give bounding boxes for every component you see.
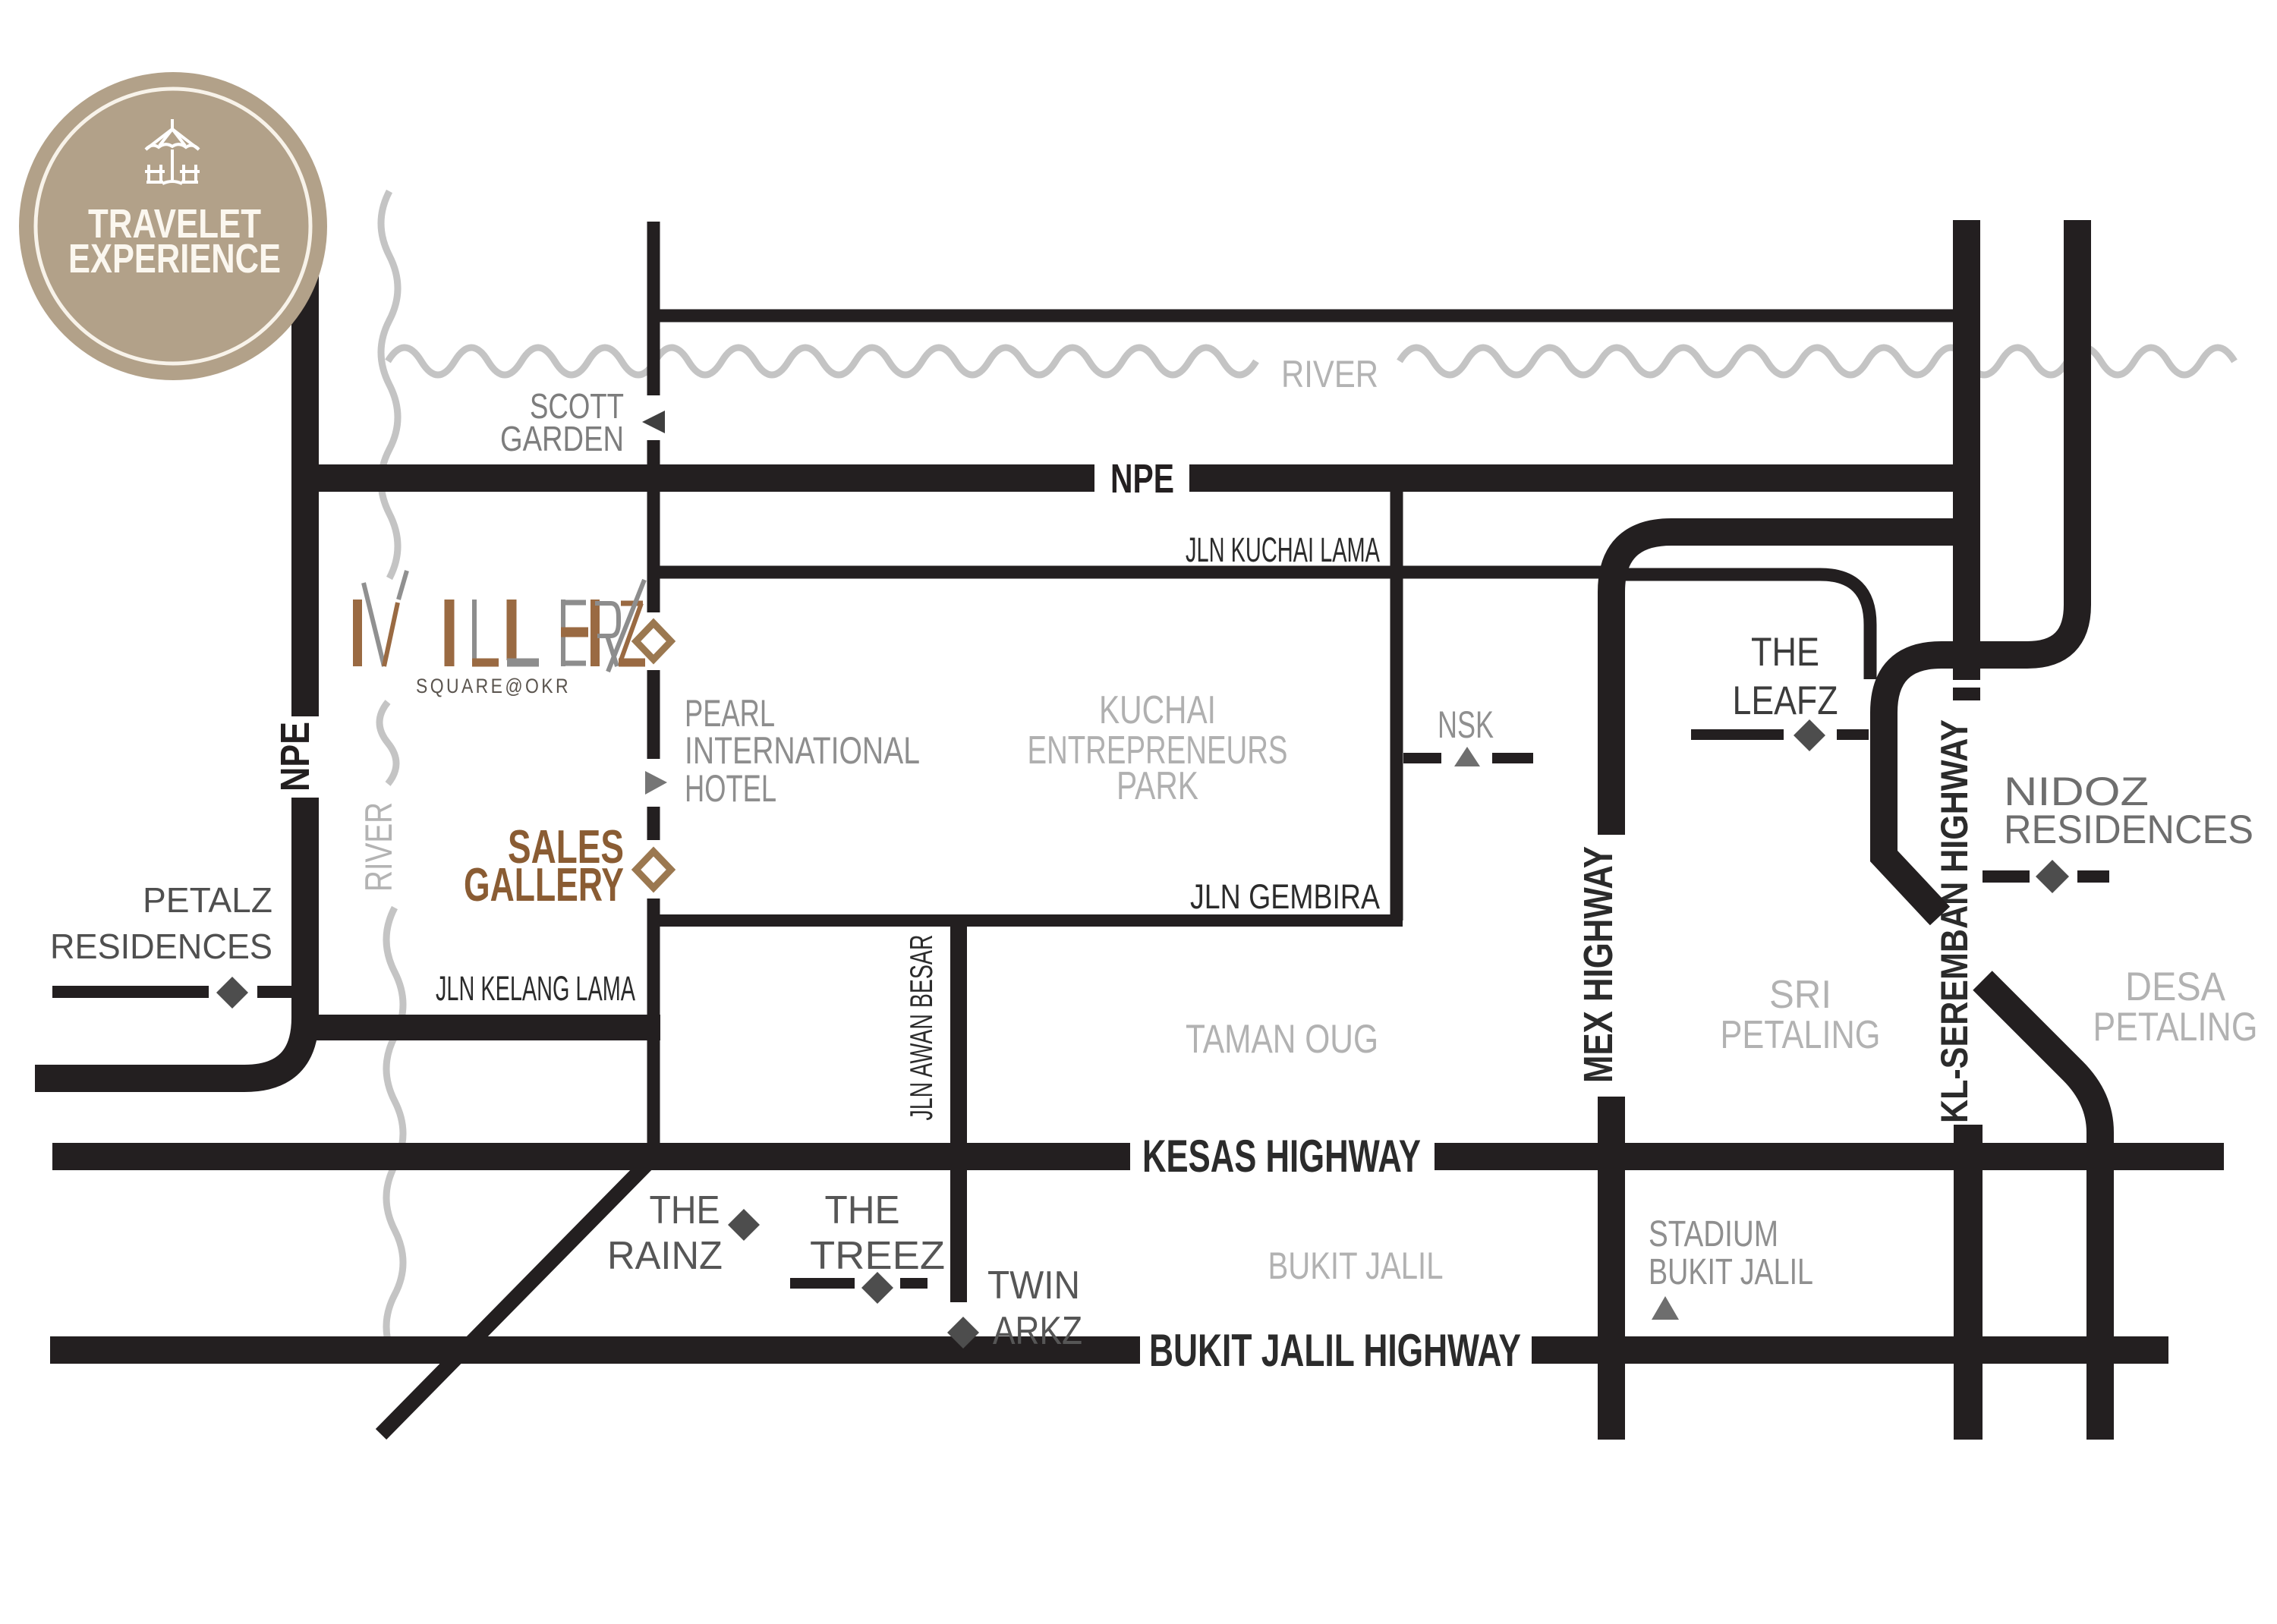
svg-text:JLN KUCHAI LAMA: JLN KUCHAI LAMA <box>1186 530 1380 569</box>
svg-text:BUKIT JALIL HIGHWAY: BUKIT JALIL HIGHWAY <box>1149 1325 1521 1376</box>
svg-text:INTERNATIONAL: INTERNATIONAL <box>685 729 920 772</box>
svg-text:NSK: NSK <box>1438 703 1494 746</box>
svg-text:THE: THE <box>825 1188 900 1232</box>
svg-text:RAINZ: RAINZ <box>607 1234 723 1278</box>
svg-text:NPE: NPE <box>1110 456 1174 502</box>
svg-text:THE: THE <box>1751 630 1819 675</box>
svg-text:RESIDENCES: RESIDENCES <box>50 927 272 966</box>
svg-text:PETALZ: PETALZ <box>143 880 272 920</box>
svg-text:RIVER: RIVER <box>357 802 400 892</box>
svg-text:SRI: SRI <box>1769 973 1831 1017</box>
svg-text:JLN AWAN BESAR: JLN AWAN BESAR <box>903 935 939 1121</box>
svg-text:RIVER: RIVER <box>1281 353 1378 395</box>
svg-text:LEAFZ: LEAFZ <box>1733 678 1838 723</box>
svg-text:EXPERIENCE: EXPERIENCE <box>68 236 281 282</box>
svg-text:PARK: PARK <box>1116 764 1198 808</box>
svg-text:STADIUM: STADIUM <box>1649 1214 1778 1254</box>
svg-text:GARDEN: GARDEN <box>500 419 624 458</box>
svg-text:SQUARE@OKR: SQUARE@OKR <box>416 675 571 697</box>
svg-text:JLN KELANG LAMA: JLN KELANG LAMA <box>436 969 635 1008</box>
svg-text:PETALING: PETALING <box>2093 1005 2258 1050</box>
svg-text:DESA: DESA <box>2125 965 2226 1009</box>
svg-text:BUKIT JALIL: BUKIT JALIL <box>1649 1252 1813 1292</box>
svg-text:PETALING: PETALING <box>1721 1013 1881 1057</box>
svg-text:ARKZ: ARKZ <box>993 1309 1082 1353</box>
svg-text:GALLERY: GALLERY <box>464 859 624 911</box>
svg-text:KESAS HIGHWAY: KESAS HIGHWAY <box>1142 1131 1421 1182</box>
svg-text:RESIDENCES: RESIDENCES <box>2004 807 2253 852</box>
svg-text:TWIN: TWIN <box>987 1264 1080 1308</box>
svg-text:HOTEL: HOTEL <box>685 767 776 810</box>
svg-text:BUKIT JALIL: BUKIT JALIL <box>1268 1245 1444 1287</box>
svg-text:TAMAN OUG: TAMAN OUG <box>1186 1017 1378 1062</box>
svg-text:KUCHAI: KUCHAI <box>1099 688 1216 732</box>
svg-text:TREEZ: TREEZ <box>810 1234 945 1278</box>
svg-text:MEX HIGHWAY: MEX HIGHWAY <box>1576 846 1621 1083</box>
svg-text:JLN GEMBIRA: JLN GEMBIRA <box>1190 877 1380 916</box>
svg-text:PEARL: PEARL <box>685 692 775 735</box>
svg-text:THE: THE <box>650 1188 720 1232</box>
svg-text:KL-SEREMBAN HIGHWAY: KL-SEREMBAN HIGHWAY <box>1933 719 1976 1123</box>
svg-text:NPE: NPE <box>272 722 318 792</box>
